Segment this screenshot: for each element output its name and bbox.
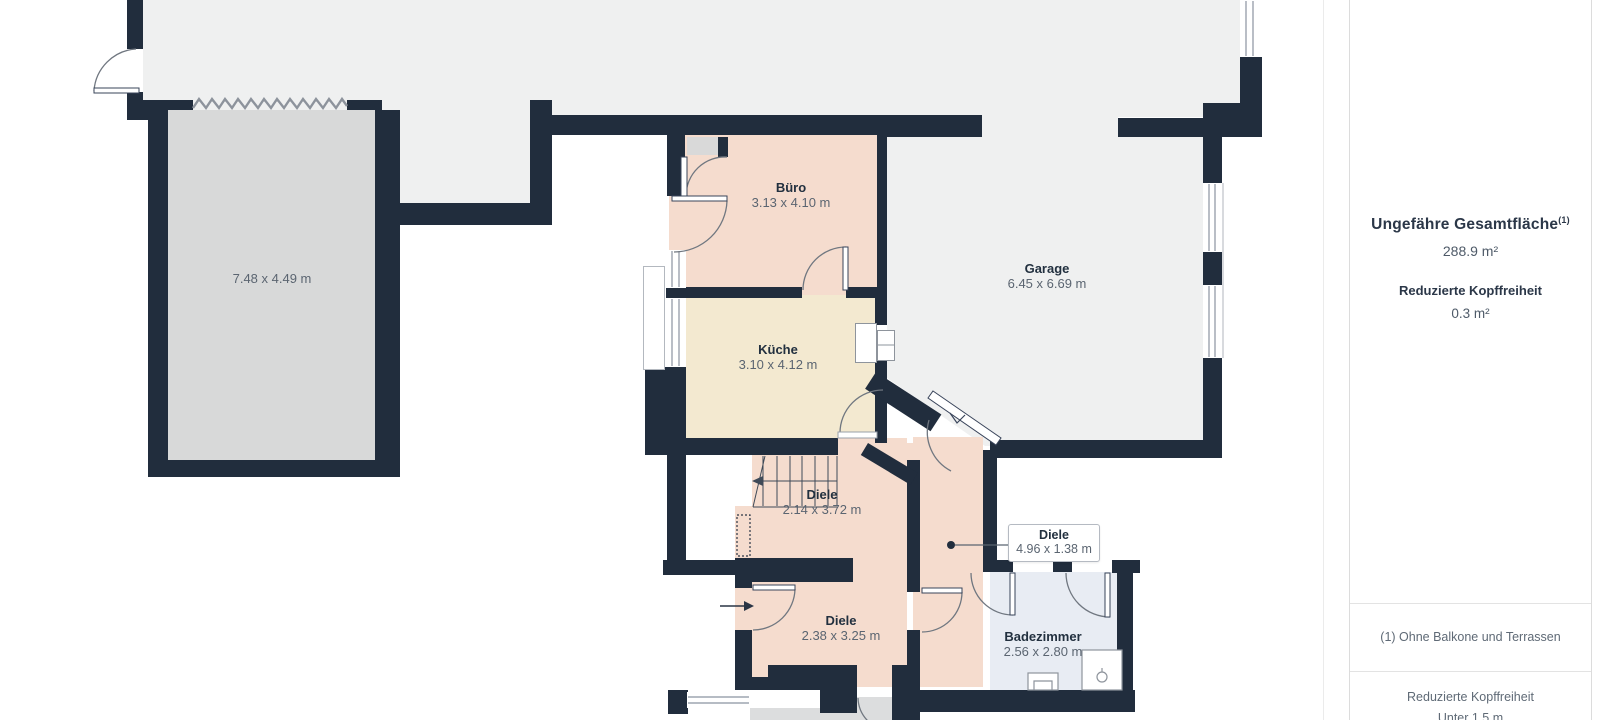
legend-title: Reduzierte Kopffreiheit — [1350, 690, 1591, 704]
room-dimensions: 2.38 x 3.25 m — [802, 628, 881, 644]
room-dimensions: 7.48 x 4.49 m — [233, 271, 312, 287]
reduced-headroom-title: Reduzierte Kopffreiheit — [1350, 283, 1591, 298]
room-label-garage: Garage6.45 x 6.69 m — [1008, 261, 1087, 292]
total-area-value: 288.9 m² — [1350, 243, 1591, 259]
callout-room-name: Diele — [1009, 528, 1099, 542]
terrace-open-edge — [193, 99, 347, 108]
footnote-text: (1) Ohne Balkone und Terrassen — [1350, 630, 1591, 644]
room-dimensions: 3.13 x 4.10 m — [752, 195, 831, 211]
total-area-title: Ungefähre Gesamtfläche(1) — [1350, 215, 1591, 234]
legend-value: Unter 1.5 m — [1350, 711, 1591, 720]
room-name: Garage — [1008, 261, 1087, 276]
room-name: Diele — [802, 613, 881, 628]
measurements-sidebar: Ungefähre Gesamtfläche(1) 288.9 m² Reduz… — [1349, 0, 1592, 720]
room-label-diele: Diele2.14 x 3.72 m — [783, 487, 862, 518]
room-name: Diele — [783, 487, 862, 502]
reduced-headroom-value: 0.3 m² — [1350, 306, 1591, 321]
entrance-arrow — [720, 601, 754, 611]
stairs-walkline-arrow — [752, 476, 763, 486]
room-callout-diele: Diele 4.96 x 1.38 m — [1008, 524, 1100, 562]
door-arcs — [94, 49, 1110, 720]
room-dimensions: 2.56 x 2.80 m — [1004, 644, 1083, 660]
room-label-badezimmer: Badezimmer2.56 x 2.80 m — [1004, 629, 1083, 660]
room-label-bro: Büro3.13 x 4.10 m — [752, 180, 831, 211]
footnote-marker: (1) — [1558, 215, 1570, 225]
callout-room-dims: 4.96 x 1.38 m — [1009, 542, 1099, 557]
headroom-dashed-region — [737, 515, 750, 556]
room-dimensions: 2.14 x 3.72 m — [783, 502, 862, 518]
area-summary-section: Ungefähre Gesamtfläche(1) 288.9 m² Reduz… — [1350, 0, 1591, 603]
room-label-diele: Diele2.38 x 3.25 m — [802, 613, 881, 644]
room-dimensions: 6.45 x 6.69 m — [1008, 276, 1087, 292]
legend-section: Reduzierte Kopffreiheit Unter 1.5 m — [1350, 671, 1591, 720]
plan-symbols — [0, 0, 1323, 720]
room-label-terrace: 7.48 x 4.49 m — [233, 271, 312, 287]
callout-anchor-dot — [947, 541, 955, 549]
canvas-edge-divider — [1323, 0, 1324, 720]
door-leaves — [94, 88, 1110, 617]
room-name: Küche — [739, 342, 818, 357]
room-label-kche: Küche3.10 x 4.12 m — [739, 342, 818, 373]
footnote-section: (1) Ohne Balkone und Terrassen — [1350, 603, 1591, 671]
room-name: Büro — [752, 180, 831, 195]
room-dimensions: 3.10 x 4.12 m — [739, 357, 818, 373]
floorplan-canvas[interactable]: 7.48 x 4.49 mBüro3.13 x 4.10 mGarage6.45… — [0, 0, 1323, 720]
floorplan-viewer: 7.48 x 4.49 mBüro3.13 x 4.10 mGarage6.45… — [0, 0, 1600, 720]
room-name: Badezimmer — [1004, 629, 1083, 644]
